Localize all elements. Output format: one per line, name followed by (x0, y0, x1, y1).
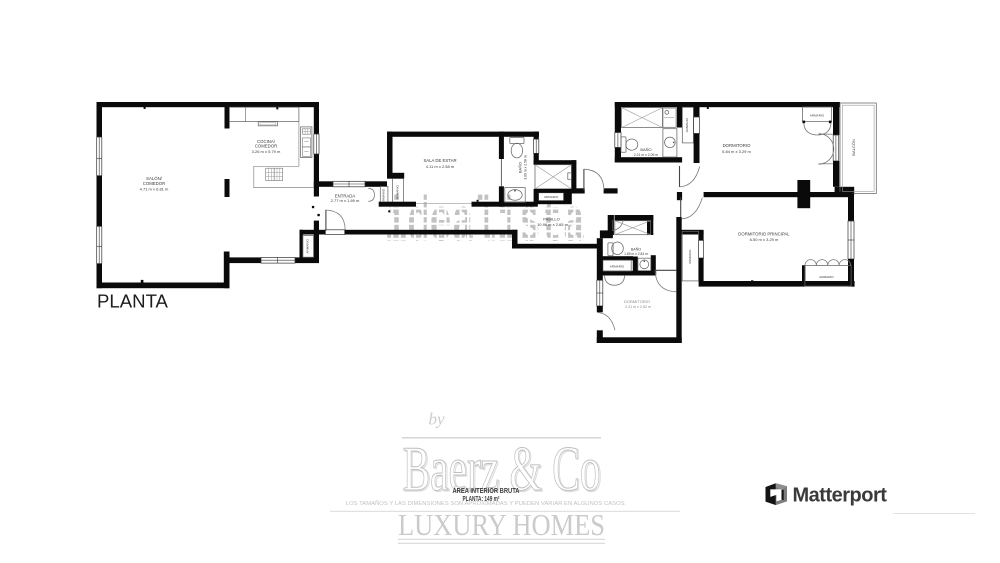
svg-text:COMEDOR: COMEDOR (143, 181, 165, 186)
svg-text:10.96 m x 2.65 m: 10.96 m x 2.65 m (537, 222, 569, 227)
svg-text:2.77 m x 1.69 m: 2.77 m x 1.69 m (331, 198, 360, 203)
svg-text:ARMARIO: ARMARIO (396, 184, 400, 199)
svg-text:DORMITORIO: DORMITORIO (723, 143, 752, 148)
svg-text:BAÑO: BAÑO (631, 246, 641, 251)
svg-text:3.69 m x 2.58 m: 3.69 m x 2.58 m (524, 155, 528, 179)
svg-text:PLANTA: PLANTA (97, 290, 169, 311)
svg-text:SALA DE ESTAR: SALA DE ESTAR (423, 158, 456, 163)
svg-text:COMEDOR: COMEDOR (255, 144, 277, 149)
svg-text:BAÑO: BAÑO (518, 162, 523, 173)
svg-text:4.71 m x 6.81 m: 4.71 m x 6.81 m (140, 187, 169, 192)
svg-text:Matterport: Matterport (793, 484, 888, 506)
svg-text:3.26 m x 5.79 m: 3.26 m x 5.79 m (252, 149, 281, 154)
svg-text:DORMITORIO: DORMITORIO (624, 299, 650, 304)
svg-text:DORMITORIO PRINCIPAL: DORMITORIO PRINCIPAL (738, 231, 790, 236)
svg-text:6.50 m x 3.29 m: 6.50 m x 3.29 m (750, 237, 779, 242)
svg-text:PASILLO: PASILLO (543, 216, 559, 221)
svg-text:ARMARIO: ARMARIO (685, 117, 689, 132)
svg-text:ARMARIO: ARMARIO (688, 249, 692, 264)
svg-text:ARMARIO: ARMARIO (382, 188, 386, 203)
svg-text:BAÑO: BAÑO (640, 147, 651, 152)
svg-text:ARMARIO: ARMARIO (810, 113, 825, 117)
svg-text:BALCÓN: BALCÓN (851, 139, 856, 156)
svg-text:2.21 m x 2.09 m: 2.21 m x 2.09 m (634, 153, 658, 157)
svg-text:LUXURY HOMES: LUXURY HOMES (398, 507, 605, 542)
svg-text:ARMARIO: ARMARIO (306, 238, 310, 253)
svg-text:5.84 m x 3.29 m: 5.84 m x 3.29 m (722, 149, 751, 154)
svg-text:4.11 m x 2.58 m: 4.11 m x 2.58 m (426, 164, 455, 169)
svg-text:LOS TAMAÑOS Y LAS DIMENSIONES: LOS TAMAÑOS Y LAS DIMENSIONES SON APROXI… (346, 500, 627, 507)
svg-text:2.31 m x 2.52 m: 2.31 m x 2.52 m (625, 305, 651, 309)
svg-text:by: by (428, 410, 445, 429)
svg-text:1.89 m x 2.84 m: 1.89 m x 2.84 m (624, 252, 648, 256)
svg-text:ARMARIO: ARMARIO (544, 195, 559, 199)
svg-text:ARMARIO: ARMARIO (819, 275, 834, 279)
svg-text:ARMARIO: ARMARIO (610, 264, 625, 268)
